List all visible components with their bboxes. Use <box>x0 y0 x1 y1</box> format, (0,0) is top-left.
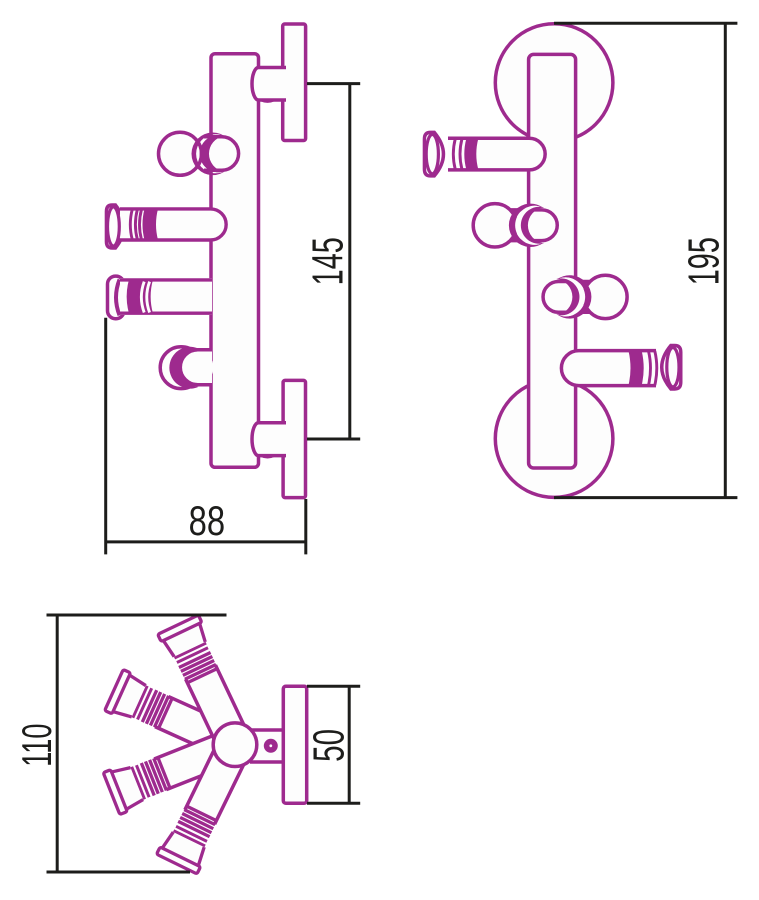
svg-text:50: 50 <box>304 729 353 762</box>
svg-text:110: 110 <box>14 724 60 767</box>
svg-text:195: 195 <box>678 237 728 285</box>
svg-text:88: 88 <box>189 497 225 544</box>
svg-text:145: 145 <box>302 237 352 285</box>
